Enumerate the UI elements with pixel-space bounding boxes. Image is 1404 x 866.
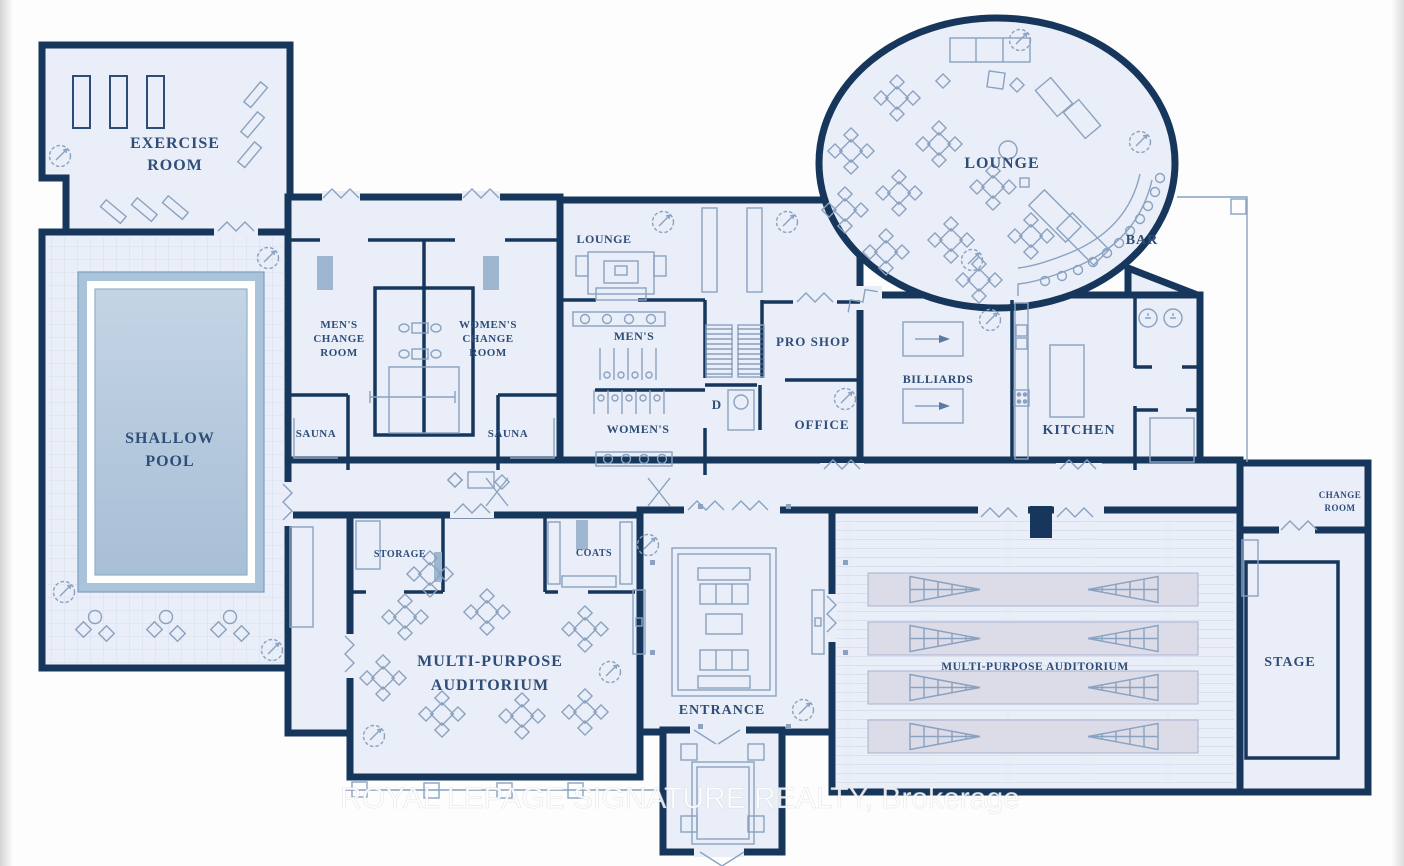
label-womens-washroom: WOMEN'S: [607, 422, 670, 436]
label-mens-change: ROOM: [320, 347, 358, 359]
label-mens-change: CHANGE: [313, 333, 364, 345]
label-shallow-pool: POOL: [145, 453, 194, 470]
locker-shaded: [317, 256, 333, 290]
label-stage-change: CHANGE: [1319, 490, 1362, 500]
label-womens-change: WOMEN'S: [459, 319, 517, 331]
label-office: OFFICE: [794, 417, 849, 432]
label-storage: STORAGE: [374, 549, 426, 560]
left-edge-vignette: [0, 0, 13, 866]
label-d-room: D: [712, 397, 722, 412]
room-entrance: [640, 510, 832, 732]
label-exercise-room: EXERCISE: [130, 135, 220, 152]
label-womens-change: CHANGE: [462, 333, 513, 345]
brokerage-watermark: ROYAL LEPAGE SIGNATURE REALTY, Brokerage: [340, 782, 1020, 815]
label-mens-change: MEN'S: [320, 319, 357, 331]
label-lounge-main: LOUNGE: [964, 155, 1039, 172]
label-womens-change: ROOM: [469, 347, 507, 359]
right-edge-vignette: [1391, 0, 1404, 866]
label-stage-change: ROOM: [1325, 503, 1356, 513]
floor-plan-svg: EXERCISE ROOM SHALLOW POOL MEN'S CHANGE …: [0, 0, 1404, 866]
label-auditorium-left: AUDITORIUM: [431, 677, 549, 694]
label-kitchen: KITCHEN: [1042, 423, 1115, 438]
label-exercise-room: ROOM: [147, 157, 203, 174]
label-entrance: ENTRANCE: [679, 703, 766, 718]
label-auditorium-left: MULTI-PURPOSE: [417, 653, 563, 670]
label-lounge-small: LOUNGE: [576, 232, 631, 246]
label-coats: COATS: [576, 548, 612, 559]
label-pro-shop: PRO SHOP: [776, 334, 850, 349]
floor-plan-page: EXERCISE ROOM SHALLOW POOL MEN'S CHANGE …: [0, 0, 1404, 866]
auditorium-door-post: [1030, 506, 1052, 538]
label-bar: BAR: [1126, 233, 1159, 248]
label-mens-washroom: MEN'S: [614, 329, 655, 343]
label-sauna-right: SAUNA: [488, 428, 528, 440]
locker-shaded: [483, 256, 499, 290]
coats-shaded: [576, 520, 588, 550]
label-stage: STAGE: [1264, 655, 1315, 670]
corridor-west-hall: [288, 515, 350, 733]
label-billiards: BILLIARDS: [903, 372, 974, 386]
label-shallow-pool: SHALLOW: [125, 430, 215, 447]
label-sauna-left: SAUNA: [296, 428, 336, 440]
label-auditorium-right: MULTI-PURPOSE AUDITORIUM: [941, 661, 1128, 673]
